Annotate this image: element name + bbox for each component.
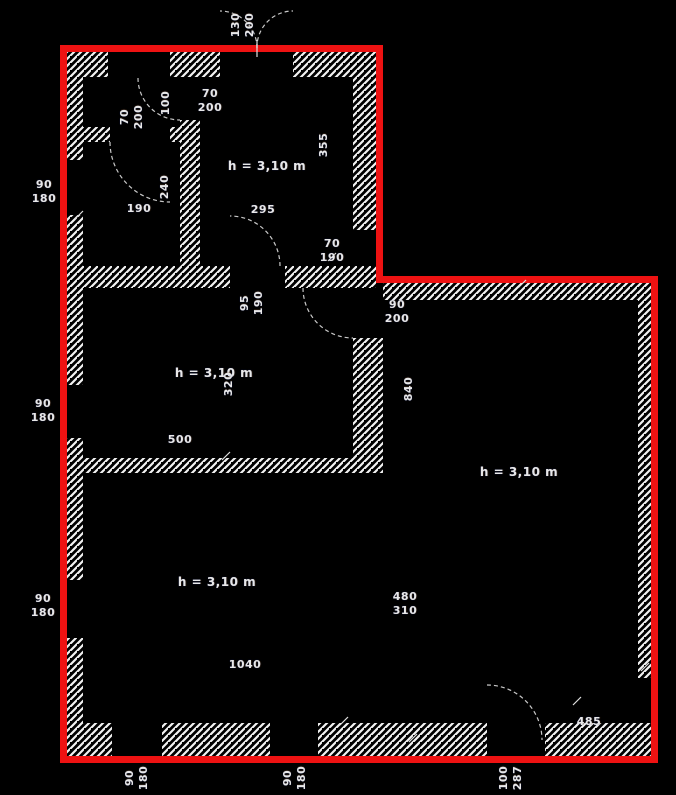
label-door-95-190: 95 190 — [238, 291, 266, 315]
label-door-90-200: 90 200 — [385, 298, 409, 326]
label-dim-320: 320 — [222, 372, 236, 396]
wall-middleroom-bottom — [67, 458, 383, 473]
wall-vertical-upperleft — [180, 120, 200, 268]
wall-bottom-seg3 — [318, 723, 487, 756]
label-dim-485: 485 — [577, 715, 601, 729]
wall-right-seg1 — [638, 300, 651, 678]
outline-left — [60, 45, 67, 763]
wall-left-seg2 — [67, 215, 83, 385]
tick — [573, 697, 581, 705]
label-window-left-1: 90 180 — [32, 178, 56, 206]
wall-vertical-mid — [353, 338, 383, 473]
label-window-bottom-1: 90 180 — [123, 766, 151, 790]
label-dim-480-310: 480 310 — [393, 590, 417, 618]
wall-top-seg3 — [293, 52, 353, 77]
outline-right — [651, 276, 658, 763]
wall-left-seg1 — [67, 52, 83, 160]
wall-mid-seg1 — [67, 266, 230, 288]
wall-hatch-layer — [67, 52, 651, 756]
label-dim-295: 295 — [251, 203, 275, 217]
label-top-door-size: 130 200 — [229, 13, 257, 37]
label-dim-190: 190 — [127, 202, 151, 216]
outline-notch-horizontal — [376, 276, 658, 283]
label-room2-height: h = 3,10 m — [175, 366, 253, 380]
wall-bottom-seg2 — [162, 723, 270, 756]
door-arc-middleroom — [303, 288, 353, 338]
wall-bottom-seg1 — [67, 723, 112, 756]
wall-room1-right — [353, 52, 376, 230]
label-dim-840: 840 — [402, 377, 416, 401]
label-room3-height: h = 3,10 m — [480, 465, 558, 479]
door-arc-room1 — [230, 216, 280, 266]
door-arc-bottomright — [487, 685, 542, 740]
label-room4-height: h = 3,10 m — [178, 575, 256, 589]
outline-notch-vertical — [376, 45, 383, 283]
floor-plan: 130 200 70 200 70 200 100 240 190 h = 3,… — [0, 0, 676, 795]
label-window-70-190: 70 190 — [320, 237, 344, 265]
label-window-bottom-2: 90 180 — [281, 766, 309, 790]
label-dim-240: 240 — [158, 175, 172, 199]
label-dim-1040: 1040 — [229, 658, 262, 672]
label-dim-355: 355 — [317, 133, 331, 157]
wall-right-top-band — [383, 283, 651, 300]
label-room1-height: h = 3,10 m — [228, 159, 306, 173]
outline-top — [60, 45, 383, 52]
wall-smallrooms-seg1 — [83, 127, 110, 142]
wall-top-seg2 — [170, 52, 220, 77]
label-door-70-200: 70 200 — [198, 87, 222, 115]
wall-smallrooms-seg2 — [170, 127, 180, 142]
outline-bottom — [60, 756, 658, 763]
floor-plan-drawing — [0, 0, 676, 795]
label-dim-500: 500 — [168, 433, 192, 447]
label-window-left-3: 90 180 — [31, 592, 55, 620]
label-door-70-200-rotated: 70 200 — [118, 105, 146, 129]
door-arc-top-right-leaf — [257, 11, 293, 48]
label-window-left-2: 90 180 — [31, 397, 55, 425]
label-dim-100: 100 — [159, 91, 173, 115]
wall-mid-seg2 — [285, 266, 376, 288]
label-door-bottom-size: 100 287 — [497, 766, 525, 790]
